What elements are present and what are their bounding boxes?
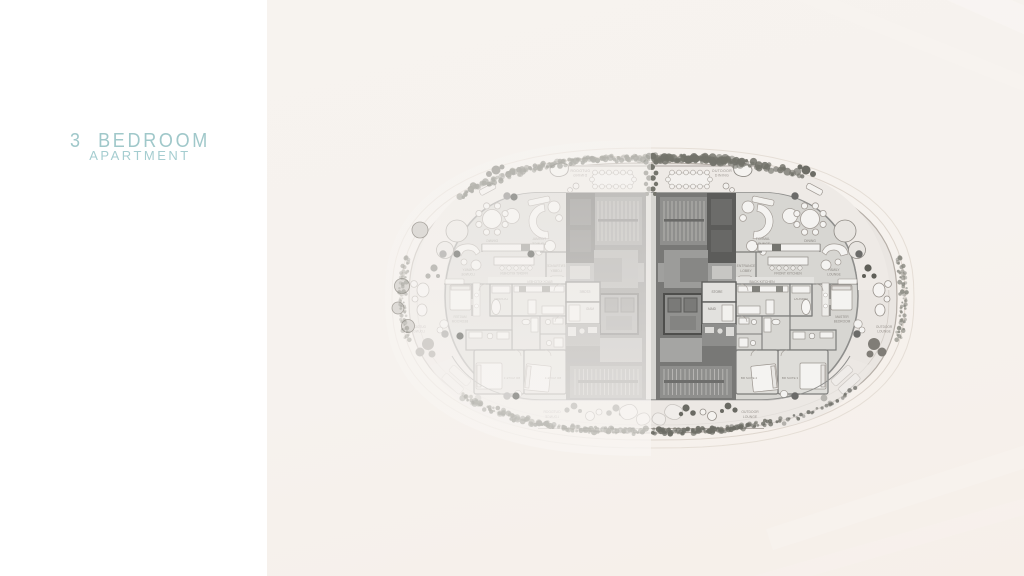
- svg-text:FRONT KITCHEN: FRONT KITCHEN: [774, 272, 802, 276]
- svg-text:STORE: STORE: [712, 290, 723, 294]
- svg-text:BEDROOM: BEDROOM: [834, 319, 851, 323]
- svg-text:DINING: DINING: [715, 174, 729, 178]
- svg-text:MAID: MAID: [708, 307, 717, 311]
- svg-text:LOUNGE: LOUNGE: [743, 415, 758, 419]
- svg-text:OUTDOOR: OUTDOOR: [741, 410, 759, 414]
- svg-text:MASTER: MASTER: [835, 315, 849, 319]
- svg-text:BR SUITE 3: BR SUITE 3: [782, 376, 799, 380]
- svg-text:DINING: DINING: [804, 239, 816, 243]
- svg-text:LOUNGE: LOUNGE: [877, 329, 890, 333]
- svg-text:LOUNGE: LOUNGE: [827, 272, 840, 276]
- svg-text:LOBBY: LOBBY: [740, 269, 752, 273]
- svg-text:FAMILY: FAMILY: [828, 268, 840, 272]
- svg-text:FORMAL: FORMAL: [756, 237, 770, 241]
- svg-text:ENTRANCE: ENTRANCE: [737, 264, 756, 268]
- svg-text:BR SUITE 2: BR SUITE 2: [741, 376, 758, 380]
- svg-text:BACK KITCHEN: BACK KITCHEN: [749, 280, 775, 284]
- svg-text:OUTDOOR: OUTDOOR: [876, 325, 893, 329]
- svg-text:OUTDOOR: OUTDOOR: [712, 169, 732, 173]
